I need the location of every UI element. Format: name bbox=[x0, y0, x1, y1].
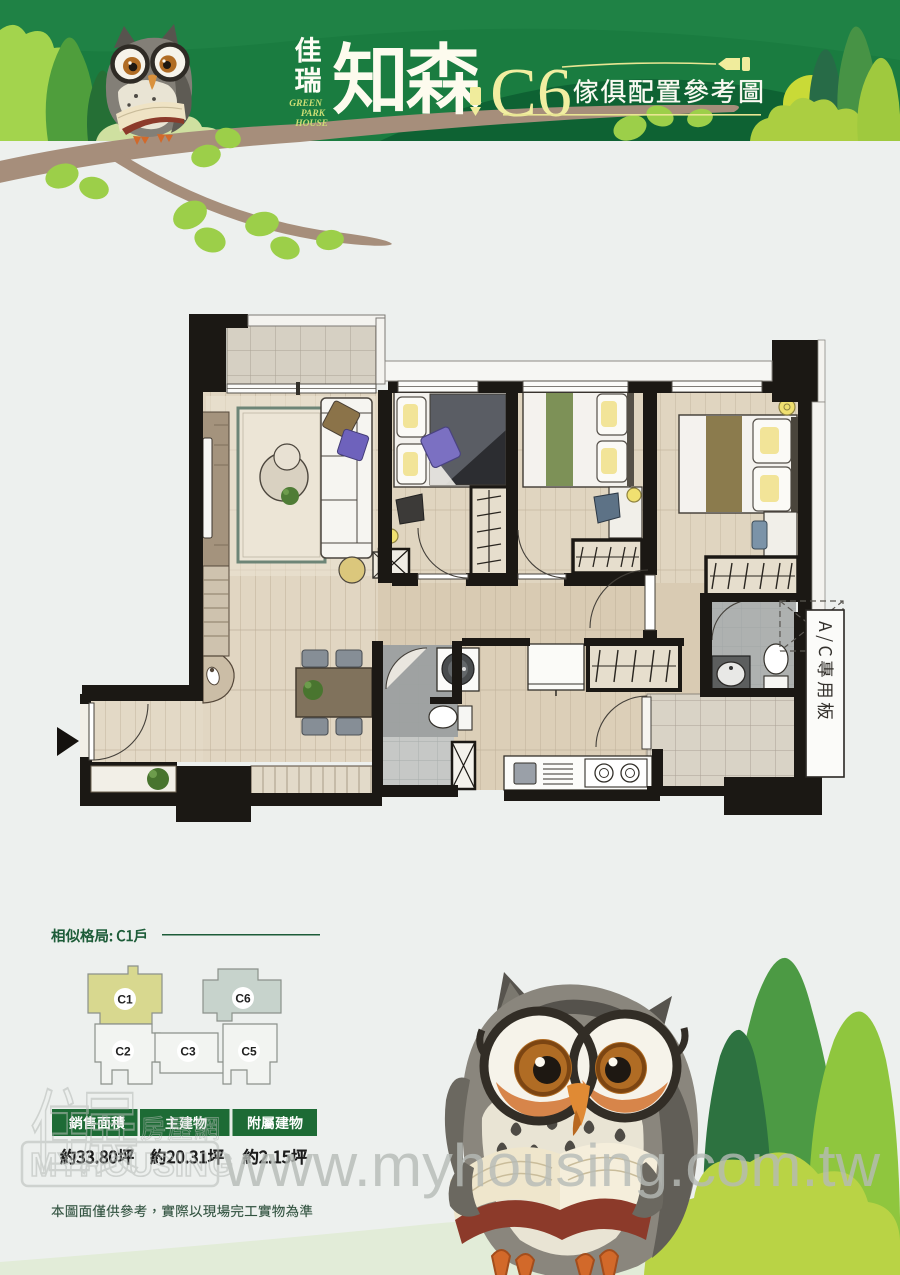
svg-text:C6: C6 bbox=[235, 992, 251, 1006]
svg-text:GREEN: GREEN bbox=[289, 99, 323, 109]
svg-text:C1: C1 bbox=[117, 993, 133, 1007]
svg-text:PARK: PARK bbox=[301, 109, 326, 119]
svg-text:C6: C6 bbox=[490, 55, 572, 132]
svg-text:www.myhousing.com.tw: www.myhousing.com.tw bbox=[223, 1132, 881, 1199]
svg-text:C3: C3 bbox=[180, 1045, 196, 1059]
svg-text:MYHOUSING: MYHOUSING bbox=[30, 1146, 234, 1183]
svg-text:HOUSE: HOUSE bbox=[294, 119, 328, 129]
svg-text:C5: C5 bbox=[241, 1045, 257, 1059]
svg-text:C2: C2 bbox=[115, 1045, 131, 1059]
